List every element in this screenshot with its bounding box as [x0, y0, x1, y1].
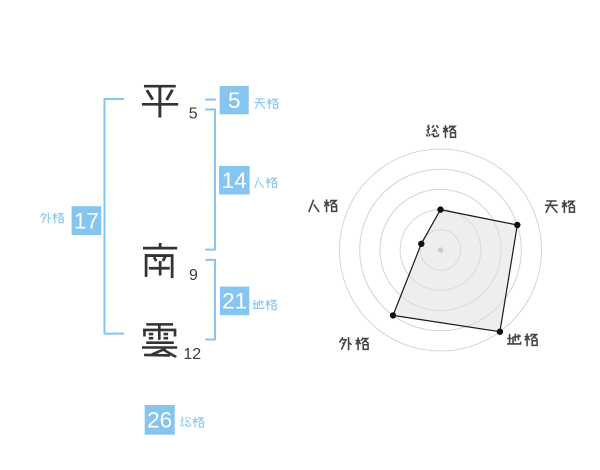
svg-text:5: 5 [228, 88, 241, 113]
svg-text:21: 21 [222, 289, 247, 314]
svg-text:12: 12 [183, 346, 201, 363]
svg-text:9: 9 [189, 267, 198, 284]
svg-text:14: 14 [222, 168, 247, 193]
svg-text:26: 26 [147, 408, 172, 433]
svg-text:17: 17 [74, 208, 99, 233]
svg-text:5: 5 [189, 106, 198, 123]
